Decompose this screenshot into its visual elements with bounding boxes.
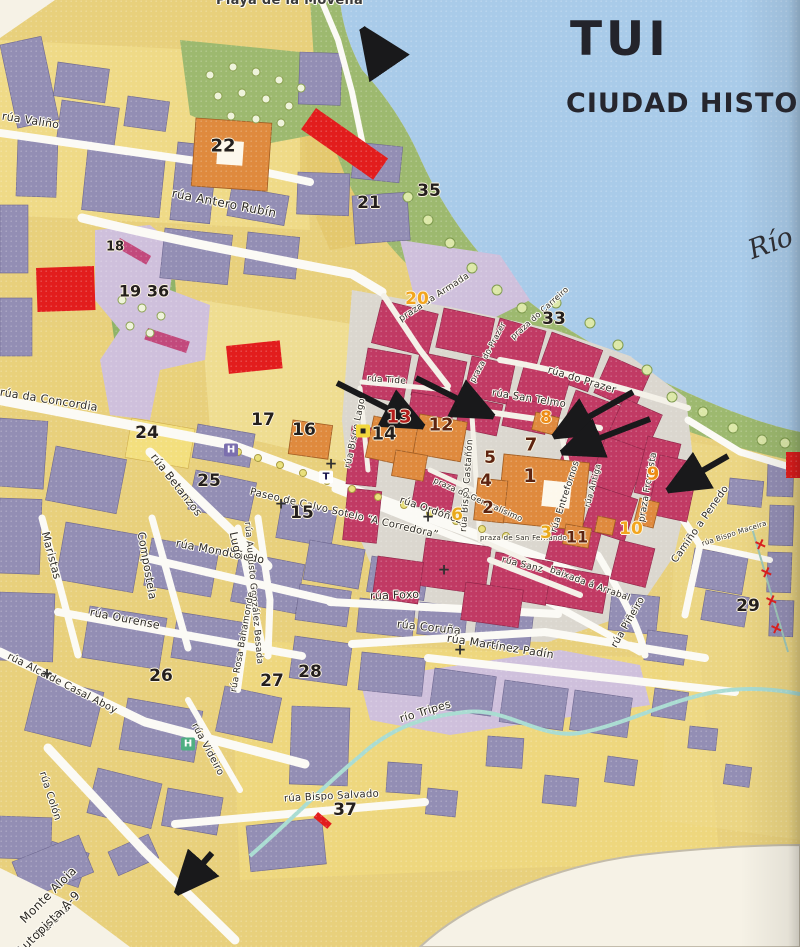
map-subtitle: CIUDAD HISTO [566, 88, 798, 119]
map-number: 3 [540, 523, 552, 543]
map-number: 27 [260, 671, 284, 691]
map-number: 15 [290, 503, 314, 523]
street-label: rúa da Concordia [0, 386, 99, 414]
map-number: 25 [197, 471, 221, 491]
map-number: 2 [482, 498, 494, 518]
cruceiro-cross: + [454, 643, 467, 658]
rail-cross: + [756, 562, 776, 583]
street-label: praza Fromista [637, 451, 659, 522]
map-number: 18 [106, 240, 124, 255]
map-number: 12 [428, 415, 453, 436]
street-label: praza de San Fernando [480, 534, 567, 542]
map-number: 1 [523, 465, 536, 487]
fuel-station-marker: ▪ [356, 425, 370, 438]
map-number: 28 [298, 662, 322, 682]
map-number: 9 [647, 464, 660, 485]
cruceiro-cross: + [41, 667, 54, 682]
cruceiro-cross: + [438, 563, 451, 578]
cruceiro-cross: + [275, 497, 288, 512]
street-label: rúa Valiño [1, 110, 60, 132]
street-label: Maristas [39, 530, 64, 580]
map-number: 22 [210, 136, 235, 157]
map-number: 17 [251, 410, 275, 430]
map-canvas: Playa de la Movella TUI CIUDAD HISTO Río… [0, 0, 800, 947]
street-label: praza do Prazer [468, 321, 508, 385]
rail-cross: + [766, 618, 786, 639]
street-label: Compostela [135, 531, 160, 601]
map-number: 35 [417, 181, 441, 201]
map-number: 24 [135, 423, 159, 443]
map-number: 8 [540, 408, 552, 428]
street-label: rúa do Prazer [546, 365, 617, 396]
map-number: 14 [371, 424, 396, 445]
street-label: rúa Sanz [501, 555, 544, 575]
street-label: Camiño a Penedo [669, 484, 731, 566]
street-label: rúa Tide [367, 374, 407, 387]
street-label: rúa Colón [37, 770, 63, 822]
rail-cross: + [761, 590, 781, 611]
river-label: Río [744, 221, 797, 266]
cruceiro-cross: + [325, 457, 338, 472]
street-label: rúa Ourense [89, 606, 161, 632]
hotel-marker: H [224, 444, 238, 457]
map-title: TUI [570, 12, 670, 67]
map-number: 37 [333, 800, 357, 820]
map-number: 33 [542, 309, 566, 329]
street-label: rúa Entrefornos [549, 460, 581, 534]
street-label: baixada á Arrabal [548, 565, 631, 603]
map-number: 4 [480, 471, 492, 491]
street-label: río Tripes [398, 697, 452, 725]
street-label: rúa Foxo [370, 588, 420, 603]
street-label: rúa Bispo Salvado [284, 789, 380, 805]
map-number: 20 [405, 289, 429, 309]
rail-cross: + [750, 534, 770, 555]
beach-label: Playa de la Movella [216, 0, 363, 8]
map-number: 19 [119, 282, 141, 301]
street-label: rúa San Telmo [491, 388, 567, 411]
map-number: 6 [451, 505, 463, 525]
map-number: 10 [619, 519, 643, 539]
map-number: 29 [736, 596, 760, 616]
map-number: 11 [566, 528, 588, 547]
map-number: 21 [357, 193, 381, 213]
street-label: rúa Antero Rubín [171, 186, 278, 220]
street-label: rúa Alcalde Casal Aboy [6, 651, 119, 716]
cruceiro-cross: + [422, 510, 435, 525]
label-layer: Playa de la Movella TUI CIUDAD HISTO Río… [0, 0, 800, 947]
map-number: 7 [525, 435, 538, 456]
street-label: rúa Antiga [583, 463, 603, 508]
map-number: 16 [292, 420, 316, 440]
map-number: 36 [147, 282, 169, 301]
map-number: 5 [484, 448, 496, 468]
map-number: 26 [149, 666, 173, 686]
hotel-marker: H [181, 738, 195, 751]
